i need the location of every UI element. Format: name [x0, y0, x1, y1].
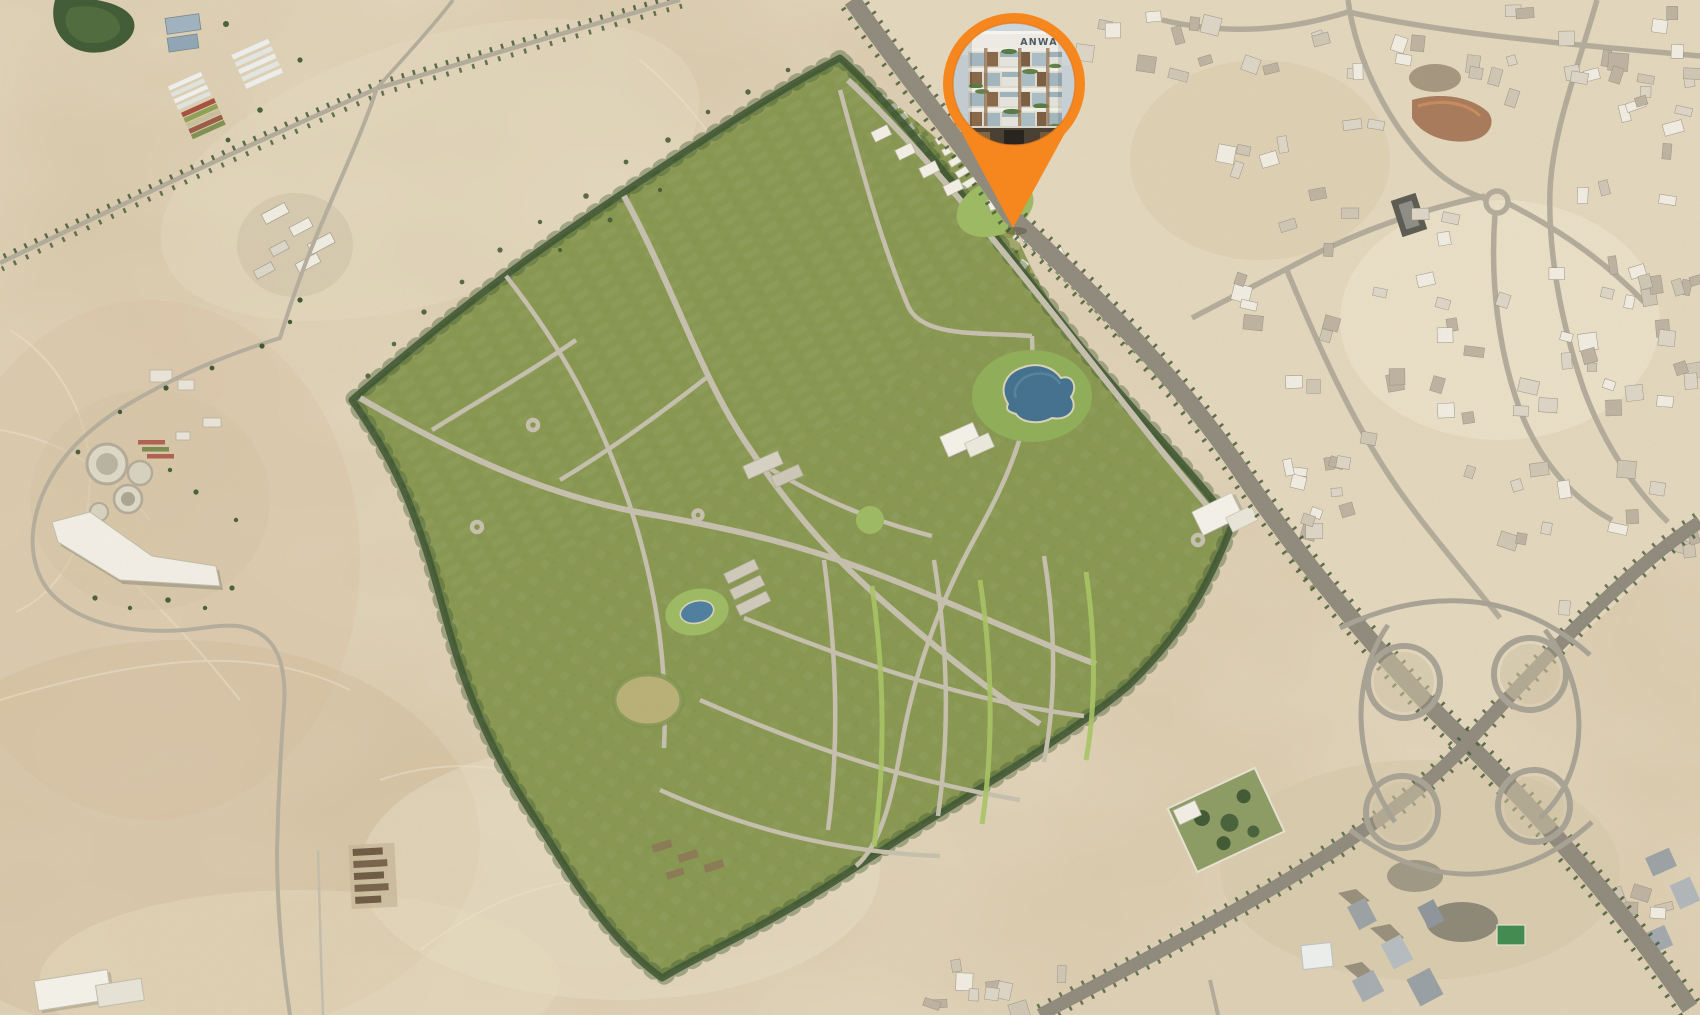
- photo-grain: [0, 0, 1700, 1015]
- screenshot-root: ANWA: [0, 0, 1700, 1015]
- satellite-map[interactable]: ANWA: [0, 0, 1700, 1015]
- building-sign: ANWA: [1020, 37, 1058, 48]
